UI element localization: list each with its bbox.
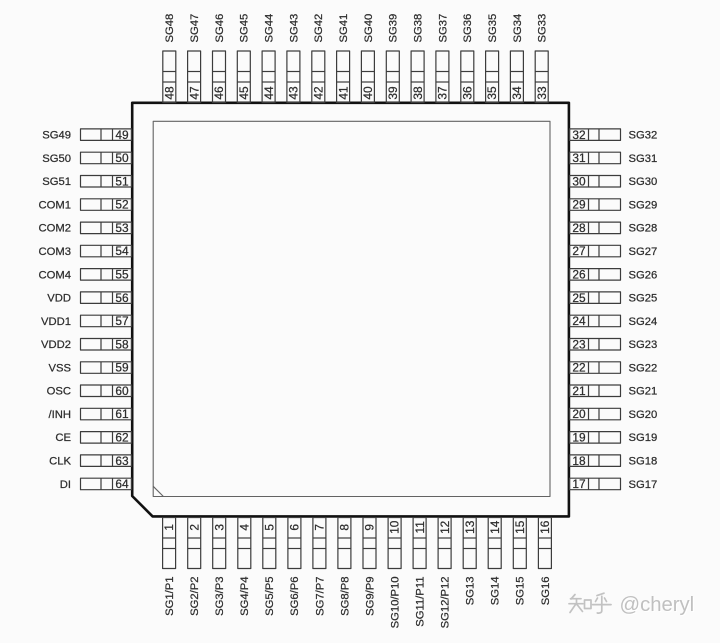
svg-text:45: 45	[237, 86, 251, 100]
svg-text:26: 26	[572, 268, 586, 282]
svg-text:SG37: SG37	[437, 14, 449, 43]
svg-text:41: 41	[336, 86, 350, 100]
svg-text:SG34: SG34	[512, 14, 524, 43]
svg-text:53: 53	[115, 221, 129, 235]
svg-text:SG9/P9: SG9/P9	[364, 577, 376, 616]
svg-text:28: 28	[572, 221, 586, 235]
svg-text:SG2/P2: SG2/P2	[189, 577, 201, 616]
svg-text:SG17: SG17	[629, 479, 658, 491]
svg-text:2: 2	[187, 524, 201, 531]
svg-text:SG36: SG36	[462, 14, 474, 43]
svg-text:SG11/P11: SG11/P11	[415, 577, 427, 627]
svg-text:16: 16	[538, 520, 552, 534]
svg-text:48: 48	[163, 86, 177, 100]
svg-text:SG38: SG38	[413, 14, 425, 43]
svg-text:SG32: SG32	[629, 130, 658, 142]
svg-text:55: 55	[115, 268, 129, 282]
svg-text:COM3: COM3	[38, 246, 71, 258]
svg-text:SG3/P3: SG3/P3	[214, 577, 226, 616]
svg-text:50: 50	[115, 151, 129, 165]
svg-text:VDD: VDD	[47, 293, 71, 305]
svg-text:VSS: VSS	[48, 362, 71, 374]
svg-text:SG45: SG45	[239, 14, 251, 43]
svg-text:SG42: SG42	[313, 14, 325, 43]
svg-text:56: 56	[115, 291, 129, 305]
svg-text:58: 58	[115, 337, 129, 351]
svg-text:14: 14	[488, 520, 502, 534]
svg-text:6: 6	[288, 524, 302, 531]
svg-text:38: 38	[411, 86, 425, 100]
svg-text:11: 11	[413, 521, 427, 534]
svg-text:SG16: SG16	[540, 577, 552, 606]
svg-text:/INH: /INH	[49, 409, 72, 421]
svg-text:DI: DI	[60, 479, 71, 491]
svg-text:25: 25	[572, 291, 586, 305]
svg-text:VDD2: VDD2	[41, 339, 71, 351]
svg-text:SG13: SG13	[465, 577, 477, 606]
svg-text:49: 49	[115, 128, 129, 142]
svg-text:22: 22	[572, 361, 586, 375]
svg-text:44: 44	[262, 86, 276, 100]
svg-text:64: 64	[115, 477, 129, 491]
svg-text:60: 60	[115, 384, 129, 398]
svg-text:SG49: SG49	[42, 130, 71, 142]
svg-text:SG20: SG20	[629, 409, 658, 421]
svg-text:40: 40	[361, 86, 375, 100]
svg-text:51: 51	[115, 174, 129, 188]
svg-text:62: 62	[115, 431, 129, 445]
svg-text:8: 8	[338, 524, 352, 531]
svg-text:7: 7	[313, 524, 327, 531]
svg-text:1: 1	[162, 524, 176, 531]
svg-text:SG24: SG24	[629, 316, 658, 328]
svg-text:9: 9	[363, 524, 377, 531]
svg-text:VDD1: VDD1	[41, 316, 71, 328]
svg-text:SG15: SG15	[515, 577, 527, 606]
svg-text:36: 36	[460, 86, 474, 100]
svg-text:24: 24	[572, 314, 586, 328]
svg-text:SG46: SG46	[214, 14, 226, 43]
svg-text:23: 23	[572, 337, 586, 351]
svg-text:SG31: SG31	[629, 153, 658, 165]
svg-text:20: 20	[572, 407, 586, 421]
svg-text:30: 30	[572, 174, 586, 188]
svg-text:12: 12	[438, 520, 452, 534]
svg-text:SG33: SG33	[537, 14, 549, 43]
svg-text:SG10/P10: SG10/P10	[389, 577, 401, 629]
svg-text:37: 37	[436, 86, 450, 100]
svg-text:COM1: COM1	[38, 199, 71, 211]
svg-text:SG48: SG48	[164, 14, 176, 43]
svg-text:27: 27	[572, 244, 586, 258]
svg-text:4: 4	[237, 524, 251, 531]
svg-text:63: 63	[115, 454, 129, 468]
svg-text:SG43: SG43	[288, 14, 300, 43]
svg-text:SG6/P6: SG6/P6	[289, 577, 301, 616]
svg-text:SG25: SG25	[629, 293, 658, 305]
svg-text:SG39: SG39	[388, 14, 400, 43]
svg-text:SG30: SG30	[629, 176, 658, 188]
svg-text:46: 46	[212, 86, 226, 100]
svg-text:SG44: SG44	[264, 14, 276, 43]
svg-text:43: 43	[287, 86, 301, 100]
svg-text:SG19: SG19	[629, 432, 658, 444]
svg-text:COM4: COM4	[38, 269, 71, 281]
svg-text:33: 33	[535, 86, 549, 100]
svg-text:18: 18	[572, 454, 586, 468]
svg-text:42: 42	[311, 86, 325, 100]
svg-text:59: 59	[115, 361, 129, 375]
svg-text:SG47: SG47	[189, 14, 201, 43]
svg-text:SG12/P12: SG12/P12	[440, 577, 452, 629]
svg-text:52: 52	[115, 198, 129, 212]
svg-text:35: 35	[485, 86, 499, 100]
svg-text:SG7/P7: SG7/P7	[314, 577, 326, 616]
svg-text:13: 13	[463, 520, 477, 534]
svg-text:SG1/P1: SG1/P1	[164, 577, 176, 616]
svg-text:29: 29	[572, 198, 586, 212]
svg-text:57: 57	[115, 314, 129, 328]
svg-text:SG29: SG29	[629, 199, 658, 211]
svg-text:54: 54	[115, 244, 129, 258]
svg-text:SG23: SG23	[629, 339, 658, 351]
svg-text:15: 15	[513, 520, 527, 534]
svg-text:3: 3	[212, 524, 226, 531]
svg-text:SG51: SG51	[42, 176, 71, 188]
svg-text:31: 31	[572, 151, 586, 165]
svg-text:17: 17	[572, 477, 586, 491]
svg-text:SG26: SG26	[629, 269, 658, 281]
svg-text:SG50: SG50	[42, 153, 71, 165]
svg-text:SG5/P5: SG5/P5	[264, 577, 276, 616]
svg-text:CE: CE	[55, 432, 71, 444]
svg-text:SG28: SG28	[629, 223, 658, 235]
svg-text:47: 47	[187, 86, 201, 100]
svg-text:19: 19	[572, 431, 586, 445]
svg-text:SG22: SG22	[629, 362, 658, 374]
svg-text:5: 5	[262, 524, 276, 531]
svg-text:SG14: SG14	[490, 577, 502, 606]
svg-text:SG35: SG35	[487, 14, 499, 43]
svg-text:CLK: CLK	[49, 456, 71, 468]
svg-text:21: 21	[572, 384, 586, 398]
svg-text:SG4/P4: SG4/P4	[239, 577, 251, 616]
svg-text:@cheryl: @cheryl	[620, 594, 695, 616]
svg-text:SG18: SG18	[629, 456, 658, 468]
svg-text:OSC: OSC	[47, 386, 71, 398]
svg-text:SG27: SG27	[629, 246, 658, 258]
svg-text:SG40: SG40	[363, 14, 375, 43]
svg-text:61: 61	[115, 407, 129, 421]
svg-text:39: 39	[386, 86, 400, 100]
svg-text:32: 32	[572, 128, 586, 142]
svg-text:10: 10	[388, 520, 402, 534]
svg-text:34: 34	[510, 86, 524, 100]
svg-text:SG41: SG41	[338, 14, 350, 43]
svg-text:SG21: SG21	[629, 386, 658, 398]
svg-text:SG8/P8: SG8/P8	[339, 577, 351, 616]
svg-text:COM2: COM2	[38, 223, 71, 235]
